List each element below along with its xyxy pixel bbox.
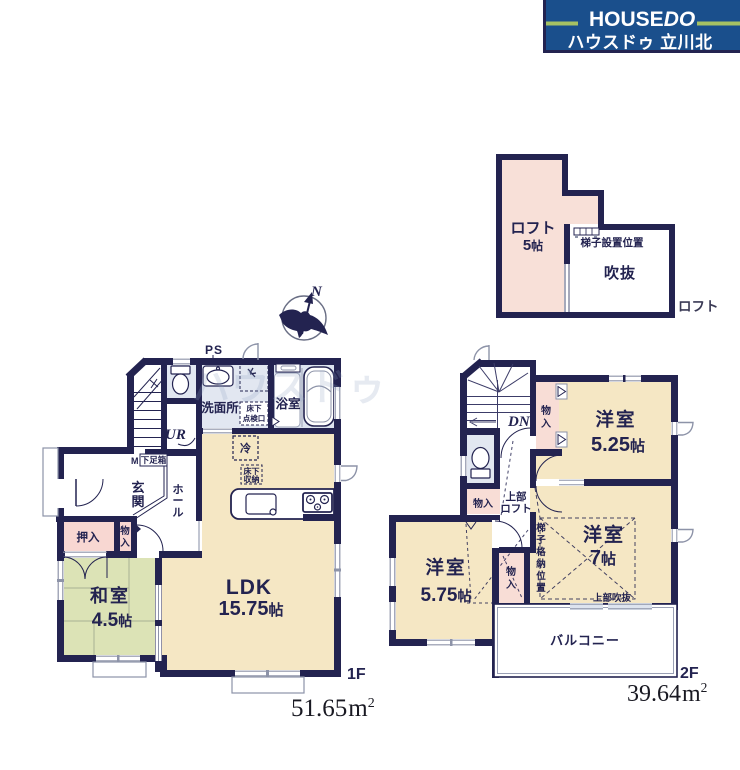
svg-text:位: 位 <box>536 570 546 582</box>
svg-text:51.65m2: 51.65m2 <box>291 695 375 722</box>
svg-text:梯子設置位置: 梯子設置位置 <box>581 236 644 249</box>
svg-text:格: 格 <box>536 546 546 558</box>
svg-text:冷: 冷 <box>240 441 251 455</box>
svg-text:UR: UR <box>165 427 186 443</box>
svg-text:下足箱: 下足箱 <box>141 455 167 465</box>
svg-text:ハウスドゥ 立川北: ハウスドゥ 立川北 <box>567 32 712 52</box>
svg-text:洋室: 洋室 <box>583 523 625 546</box>
svg-text:入: 入 <box>541 418 551 430</box>
svg-text:HOUSEDO: HOUSEDO <box>589 8 695 31</box>
svg-text:ハウスドゥ: ハウスドゥ <box>192 367 387 409</box>
svg-text:関: 関 <box>131 494 144 509</box>
svg-text:バルコニー: バルコニー <box>550 633 620 648</box>
svg-text:5帖: 5帖 <box>523 237 543 254</box>
svg-text:置: 置 <box>536 582 546 594</box>
svg-text:PS: PS <box>205 343 223 357</box>
svg-text:洋室: 洋室 <box>425 557 466 578</box>
svg-text:DN: DN <box>507 414 531 430</box>
svg-text:4.5帖: 4.5帖 <box>92 610 132 631</box>
svg-text:ロフト: ロフト <box>510 220 555 237</box>
svg-text:15.75帖: 15.75帖 <box>218 598 283 620</box>
svg-text:物: 物 <box>120 525 130 537</box>
svg-text:5.75帖: 5.75帖 <box>421 585 472 606</box>
svg-text:洋室: 洋室 <box>595 409 636 430</box>
svg-text:梯: 梯 <box>536 522 546 534</box>
svg-text:M: M <box>131 456 139 466</box>
svg-text:押入: 押入 <box>77 530 100 544</box>
svg-text:1F: 1F <box>347 666 366 683</box>
svg-text:物: 物 <box>541 404 551 417</box>
svg-text:点検口: 点検口 <box>243 413 266 423</box>
svg-text:2F: 2F <box>680 665 699 682</box>
svg-text:上部: 上部 <box>506 490 527 503</box>
svg-text:物: 物 <box>506 565 516 578</box>
svg-text:上部吹抜: 上部吹抜 <box>593 592 632 604</box>
svg-text:LDK: LDK <box>226 576 272 599</box>
svg-text:ル: ル <box>173 507 184 519</box>
svg-text:ー: ー <box>173 495 184 507</box>
svg-text:和室: 和室 <box>90 585 130 606</box>
svg-text:物入: 物入 <box>473 497 493 510</box>
svg-text:39.64m2: 39.64m2 <box>627 680 707 707</box>
svg-text:子: 子 <box>536 535 546 546</box>
svg-text:入: 入 <box>119 538 130 549</box>
svg-text:入: 入 <box>506 579 516 591</box>
svg-text:7帖: 7帖 <box>590 547 616 569</box>
svg-text:納: 納 <box>536 558 546 570</box>
svg-text:ロフト: ロフト <box>678 299 719 314</box>
svg-text:5.25帖: 5.25帖 <box>591 434 645 456</box>
svg-text:吹抜: 吹抜 <box>604 264 636 282</box>
svg-text:ロフト: ロフト <box>500 503 532 515</box>
svg-text:玄: 玄 <box>131 480 144 495</box>
svg-text:収納: 収納 <box>244 474 260 484</box>
svg-text:N: N <box>310 284 323 300</box>
